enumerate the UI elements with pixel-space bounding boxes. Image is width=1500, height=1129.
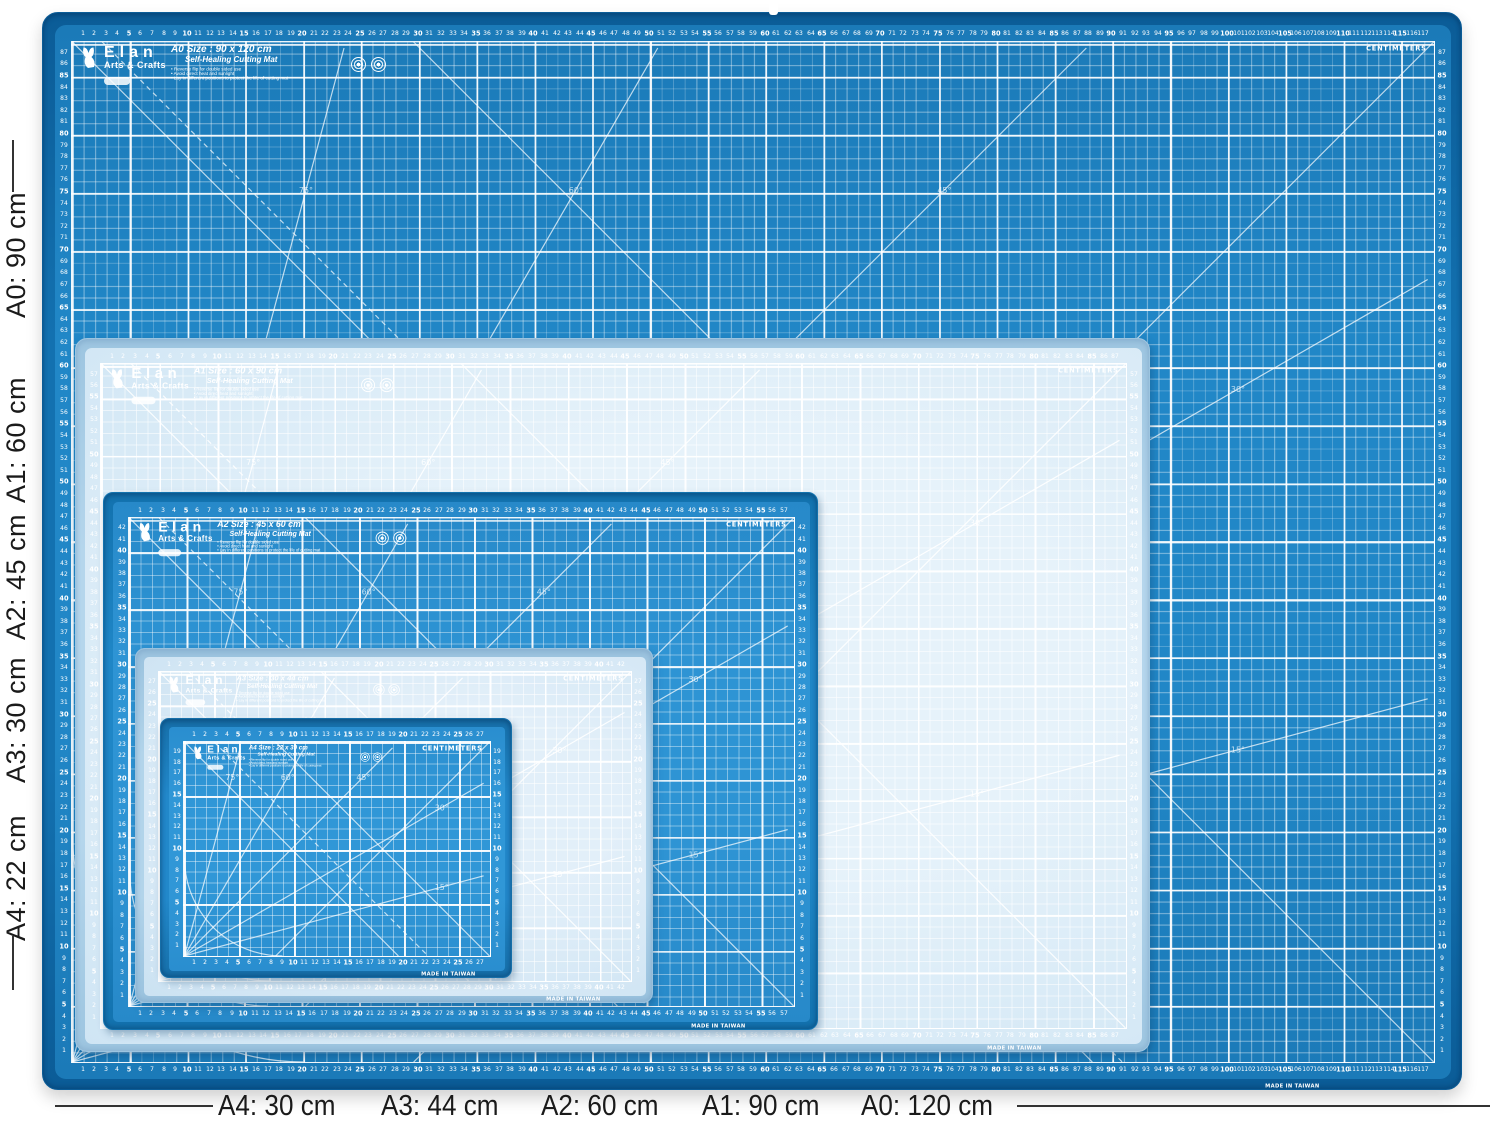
brand-bullet-list: • Reverse flip for double sided use• Avo… [194,387,303,400]
bottom-dimension-label: A4: 30 cm [218,1090,336,1123]
units-label: CENTIMETERS [423,745,483,752]
made-in-label: MADE IN TAIWAN [691,1023,745,1029]
brand-block: ElanArts & CraftsA3 Size : 30 x 44 cmSel… [168,675,400,708]
units-label: CENTIMETERS [1059,367,1119,374]
brand-tagline: Self-Healing Cutting Mat [207,376,359,384]
rotary-mark-icon [373,752,382,761]
brand-bullet: • Lay in different positions to protect … [249,764,322,767]
rotary-mark-icon [389,684,400,695]
rotary-mark-icon [374,684,385,695]
left-dimension-label: A3: 30 cm [1,657,32,783]
brand-badge-pill [158,549,181,556]
units-label: CENTIMETERS [564,675,624,682]
brand-bullet: • Lay in different positions to protect … [194,396,303,400]
brand-division: Arts & Crafts [207,754,245,760]
brand-size-column: A3 Size : 30 x 44 cmSelf-Healing Cutting… [236,675,371,708]
elan-rabbit-logo-icon [138,521,154,542]
brand-name-column: ElanArts & Crafts [131,367,189,404]
brand-bullet-list: • Reverse flip for double sided use• Avo… [249,759,322,768]
dimension-line [55,1105,213,1107]
rotary-mark-icons [362,378,395,392]
rotary-mark-icon [351,57,366,72]
brand-bullet: • Lay in different positions to protect … [236,699,325,703]
brand-bullet-list: • Reverse flip for double sided use• Avo… [171,67,288,81]
rotary-mark-icon [394,532,407,545]
rotary-mark-icons [376,532,407,545]
units-label: CENTIMETERS [727,521,787,528]
brand-size-column: A0 Size : 90 x 120 cmSelf-Healing Cuttin… [171,45,348,88]
elan-rabbit-logo-icon [193,745,204,760]
product-photo-scene: 75°60°45°30°15°1122334455667788991010111… [0,0,1500,1129]
bottom-dimension-label: A3: 44 cm [381,1090,499,1123]
mat-size-label: A2 Size : 45 x 60 cm [217,521,373,530]
rotary-mark-icon [371,57,386,72]
brand-bullet: • Lay in different positions to protect … [171,76,288,81]
left-dimension-label: A1: 60 cm [1,377,32,503]
brand-division: Arts & Crafts [104,60,166,70]
brand-size-column: A4 Size : 22 x 30 cmSelf-Healing Cutting… [249,745,359,772]
elan-rabbit-logo-icon [110,367,127,389]
rotary-mark-icons [351,57,386,72]
elan-rabbit-logo-icon [168,675,182,693]
made-in-label: MADE IN TAIWAN [1265,1083,1319,1089]
brand-bullet-list: • Reverse flip for double sided use• Avo… [236,692,325,703]
dimension-line [12,936,14,990]
made-in-label: MADE IN TAIWAN [421,971,475,977]
cutting-mat-a4: 75°60°45°30°15°1122334455667788991010111… [160,718,512,978]
brand-name: Elan [185,675,232,686]
brand-division: Arts & Crafts [185,686,232,694]
units-label: CENTIMETERS [1367,45,1427,52]
brand-bullet: • Lay in different positions to protect … [217,548,320,552]
rotary-mark-icon [361,752,370,761]
bottom-dimension-label: A0: 120 cm [861,1090,993,1123]
rotary-mark-icon [380,378,394,392]
brand-tagline: Self-Healing Cutting Mat [257,751,358,757]
made-in-label: MADE IN TAIWAN [546,996,600,1002]
brand-block: ElanArts & CraftsA0 Size : 90 x 120 cmSe… [81,45,386,88]
brand-name: Elan [207,745,245,754]
mat-size-label: A1 Size : 60 x 90 cm [194,367,359,376]
brand-tagline: Self-Healing Cutting Mat [230,530,374,538]
brand-name: Elan [158,521,213,534]
brand-badge-pill [185,699,205,705]
brand-badge-pill [207,765,223,770]
brand-name: Elan [131,367,189,381]
dimension-line [1017,1105,1490,1107]
brand-block: ElanArts & CraftsA2 Size : 45 x 60 cmSel… [138,521,407,559]
brand-badge-pill [131,397,155,404]
rotary-mark-icons [361,752,383,761]
rotary-mark-icon [376,532,389,545]
left-dimension-label: A2: 45 cm [1,514,32,640]
rotary-mark-icons [374,684,401,695]
mat-size-label: A0 Size : 90 x 120 cm [171,45,348,55]
brand-name-column: ElanArts & Crafts [158,521,213,556]
brand-name-column: ElanArts & Crafts [207,745,245,770]
bottom-dimension-label: A1: 90 cm [702,1090,820,1123]
elan-rabbit-logo-icon [81,45,99,69]
mat-edge-highlight [769,0,778,15]
dimension-line [12,140,14,192]
brand-block: ElanArts & CraftsA4 Size : 22 x 30 cmSel… [193,745,382,772]
brand-division: Arts & Crafts [131,381,189,390]
made-in-label: MADE IN TAIWAN [987,1045,1041,1051]
brand-tagline: Self-Healing Cutting Mat [185,55,348,64]
brand-bullet-list: • Reverse flip for double sided use• Avo… [217,540,320,552]
bottom-dimension-label: A2: 60 cm [541,1090,659,1123]
brand-tagline: Self-Healing Cutting Mat [247,683,371,690]
brand-name-column: ElanArts & Crafts [185,675,232,705]
brand-name: Elan [104,45,166,60]
mat-surface: 75°60°45°30°15°1122334455667788991010111… [169,727,505,971]
brand-block: ElanArts & CraftsA1 Size : 60 x 90 cmSel… [110,367,394,407]
brand-name-column: ElanArts & Crafts [104,45,166,85]
brand-size-column: A1 Size : 60 x 90 cmSelf-Healing Cutting… [194,367,359,407]
brand-badge-pill [104,77,130,85]
mat-size-label: A3 Size : 30 x 44 cm [236,675,371,683]
left-dimension-label: A0: 90 cm [1,192,32,318]
brand-division: Arts & Crafts [158,534,213,543]
rotary-mark-icon [362,378,376,392]
left-dimension-label: A4: 22 cm [1,815,32,941]
brand-size-column: A2 Size : 45 x 60 cmSelf-Healing Cutting… [217,521,373,559]
